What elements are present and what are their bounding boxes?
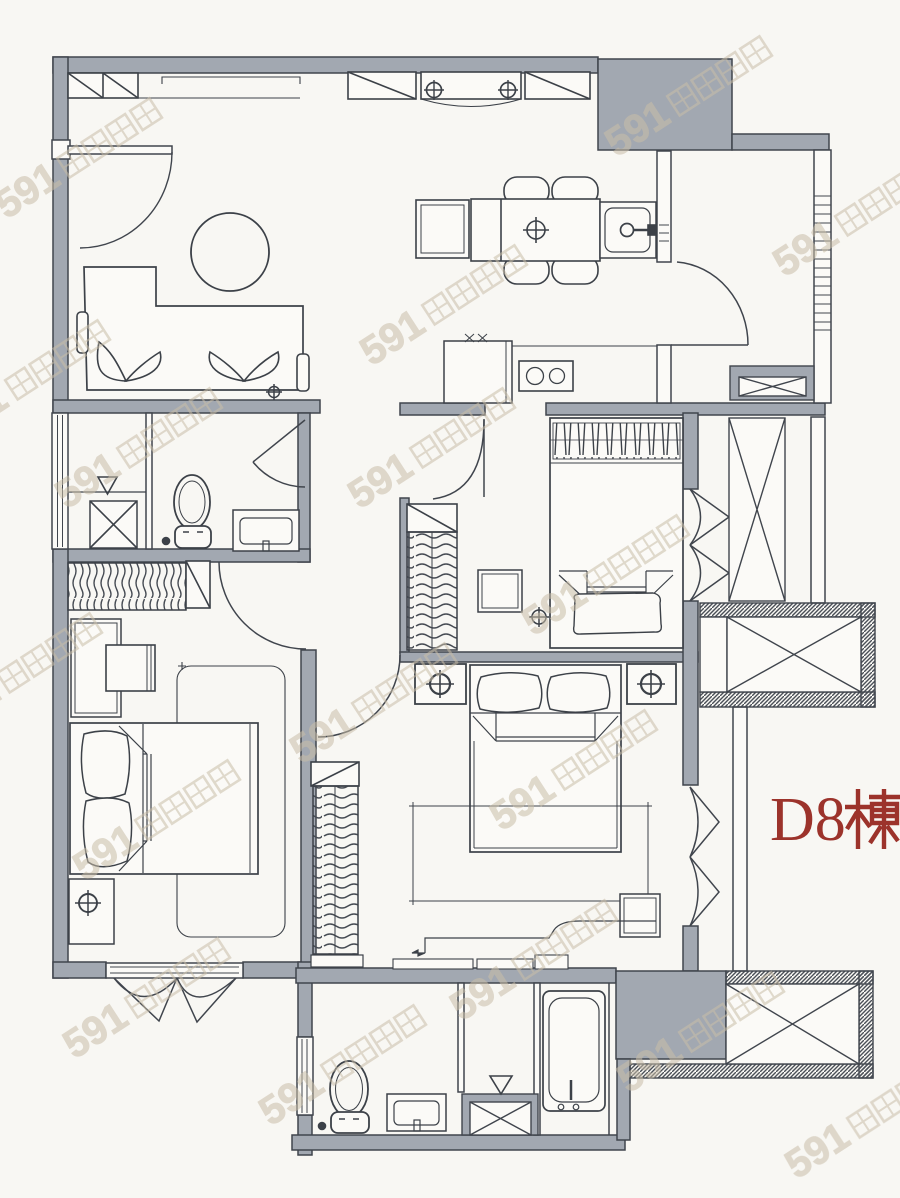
svg-text:D8: D8 xyxy=(770,786,846,854)
